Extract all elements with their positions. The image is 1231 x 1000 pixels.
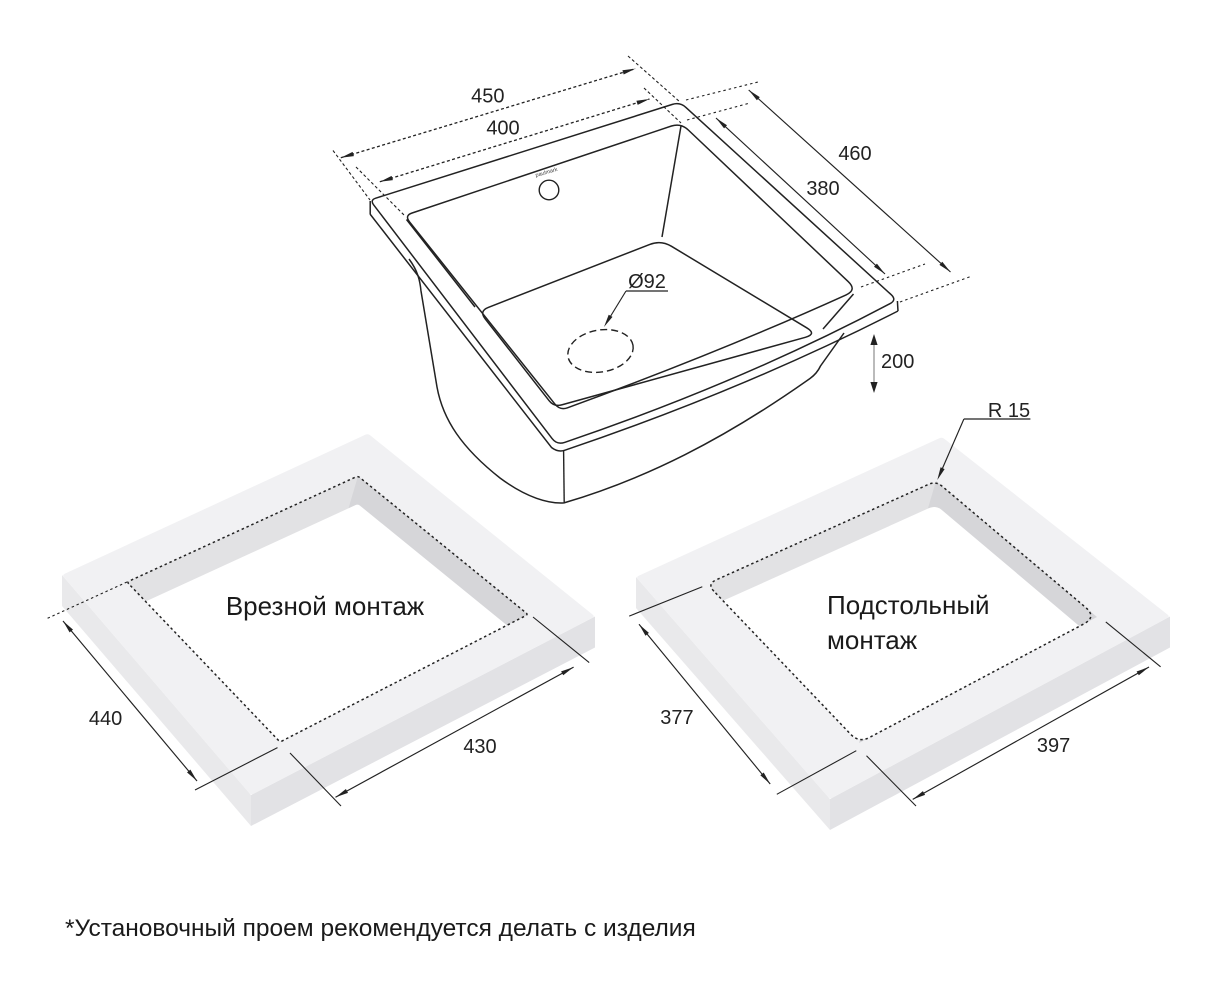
- svg-text:450: 450: [471, 86, 504, 108]
- svg-text:380: 380: [806, 178, 839, 200]
- svg-text:Ø92: Ø92: [628, 271, 666, 293]
- svg-text:430: 430: [463, 736, 496, 758]
- svg-text:400: 400: [486, 118, 519, 140]
- svg-text:200: 200: [881, 351, 914, 373]
- svg-text:*Установочный проем рекомендуе: *Установочный проем рекомендуется делать…: [65, 915, 696, 942]
- svg-text:монтаж: монтаж: [827, 625, 918, 655]
- svg-text:440: 440: [89, 708, 122, 730]
- svg-text:377: 377: [660, 707, 693, 729]
- svg-text:460: 460: [838, 143, 871, 165]
- svg-text:Врезной монтаж: Врезной монтаж: [226, 591, 425, 621]
- svg-text:397: 397: [1037, 735, 1070, 757]
- svg-text:Подстольный: Подстольный: [827, 590, 990, 620]
